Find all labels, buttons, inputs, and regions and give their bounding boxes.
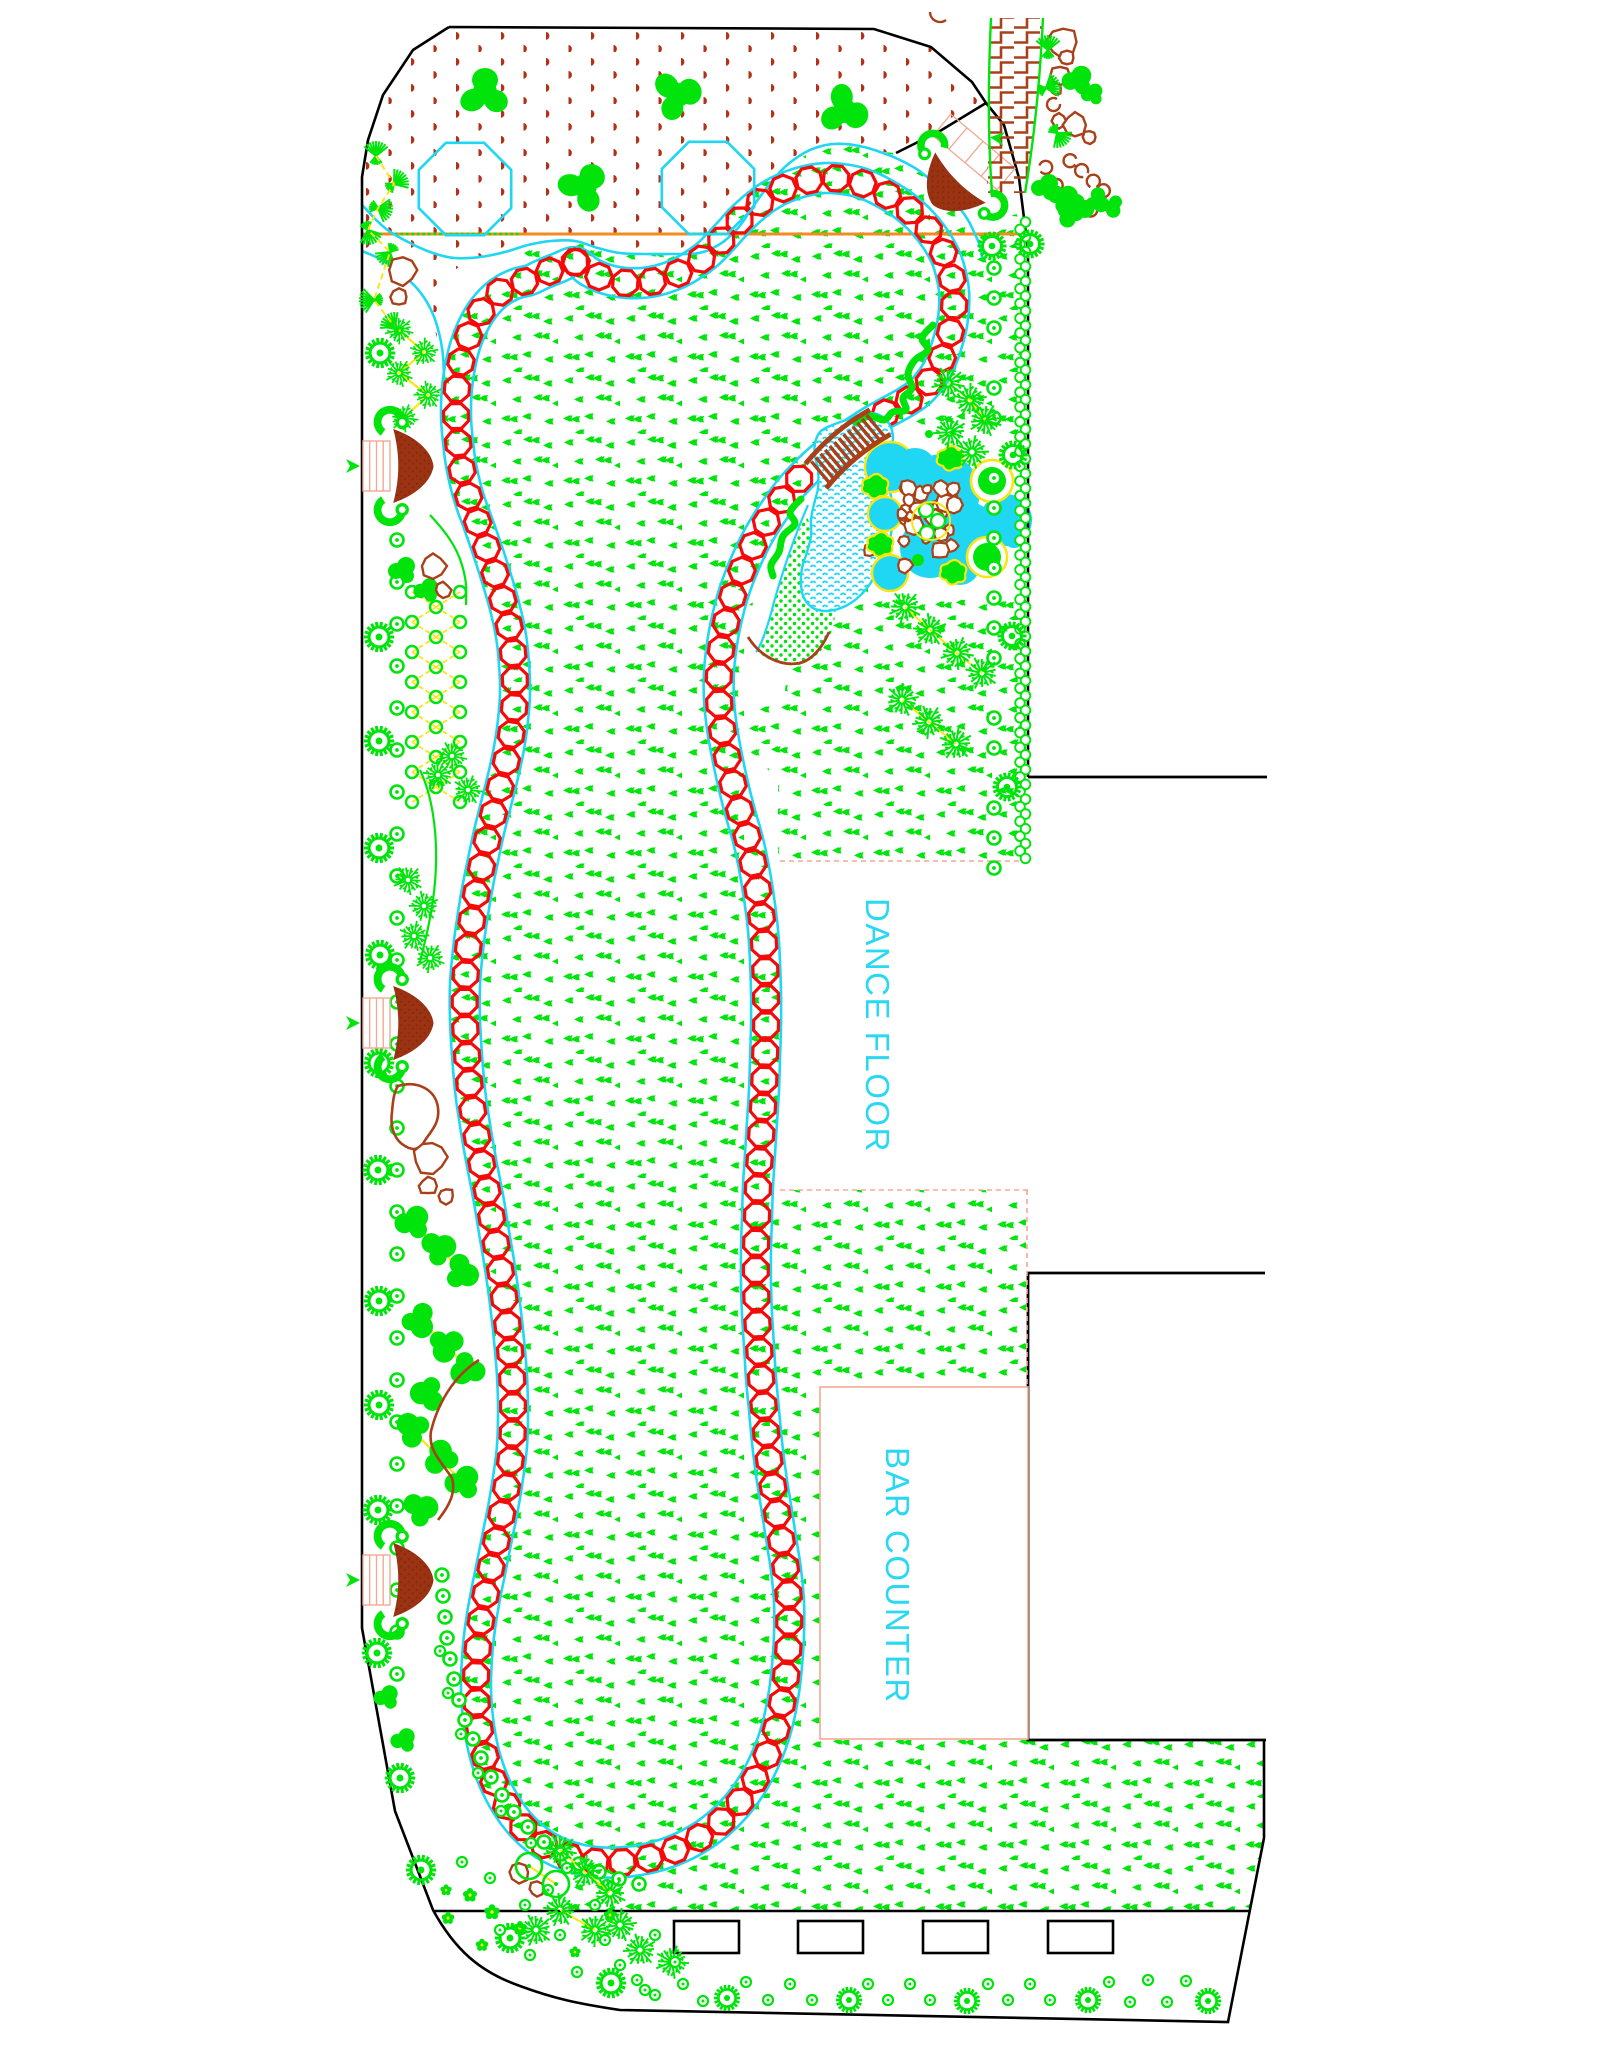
svg-text:BAR COUNTER: BAR COUNTER (879, 1447, 916, 1704)
svg-text:DANCE FLOOR: DANCE FLOOR (859, 898, 896, 1153)
